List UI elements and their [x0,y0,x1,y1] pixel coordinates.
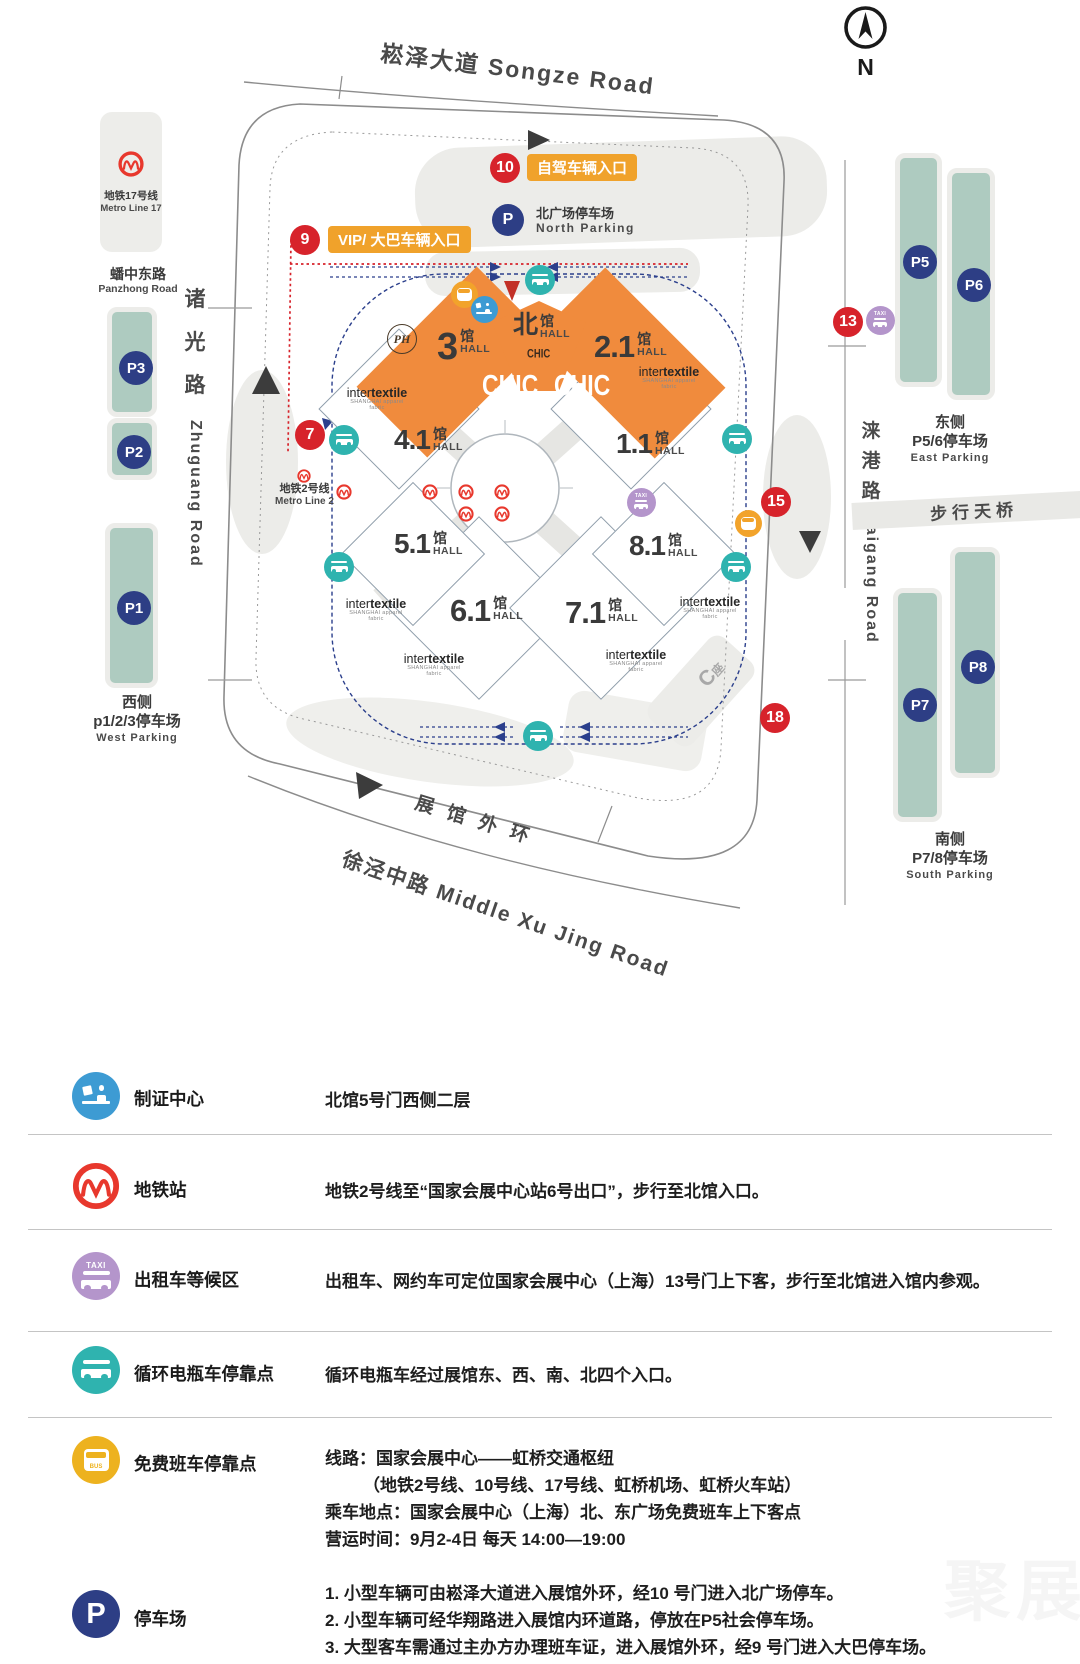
intertextile-logo: intertextile SHANGHAI apparel fabric [634,366,704,391]
badge-center-map-icon [471,296,498,323]
p2-badge: P2 [117,435,151,469]
self-drive-entrance-tag: 自驾车辆入口 [527,154,637,181]
divider [28,1229,1052,1230]
vip-bus-entrance-tag: VIP/ 大巴车辆入口 [328,226,471,253]
taxi-icon: TAXI [72,1252,120,1300]
intertextile-logo: intertextile SHANGHAI apparel fabric [601,649,671,674]
compass-n-label: N [843,56,888,79]
intertextile-logo: intertextile SHANGHAI apparel fabric [675,596,745,621]
panzhong-road-label: 蟠中东路 Panzhong Road [88,266,188,295]
map: 崧泽大道 Songze Road N 地铁17号线 Metro Line 17 … [0,0,1080,980]
intertextile-logo: intertextile SHANGHAI apparel fabric [341,598,411,623]
south-parking-label: 南侧 P7/8停车场 South Parking [880,831,1020,882]
legend-desc-metro: 地铁2号线至“国家会展中心站6号出口”，步行至北馆入口。 [325,1177,769,1202]
legend-label-free-bus: 免费班车停靠点 [134,1451,257,1476]
legend-desc-shuttle: 循环电瓶车经过展馆东、西、南、北四个入口。 [325,1361,682,1386]
intertextile-logo: intertextile SHANGHAI apparel fabric [342,387,412,412]
p8-badge: P8 [961,650,995,684]
metro17-en: Metro Line 17 [100,203,161,214]
p3-badge: P3 [119,351,153,385]
p7-badge: P7 [903,688,937,722]
metro-exit-icon [297,469,311,483]
taxi-stand-icon: TAXI [866,306,895,335]
shuttle-stop-icon [329,425,359,455]
hall-2-1-label: 2.1 馆HALL [594,331,667,362]
north-hall-label: 北 馆HALL [513,313,570,339]
gate-7-marker: 7 [295,420,325,450]
gate-10-marker: 10 [490,153,520,183]
hall-1-1-label: 1.1 馆HALL [616,430,685,458]
metro-exit-icon [458,506,474,522]
legend-label-parking: 停车场 [134,1606,187,1631]
p1-badge: P1 [117,591,151,625]
shuttle-stop-icon [324,552,354,582]
shuttle-icon [72,1346,120,1394]
divider [28,1134,1052,1135]
parking-icon: P [72,1590,120,1638]
bus-stop-icon [735,510,762,537]
legend-desc-free-bus: 线路：国家会展中心——虹桥交通枢纽 （地铁2号线、10号线、17号线、虹桥机场、… [325,1445,801,1553]
metro-exit-icon [458,484,474,500]
legend-label-taxi: 出租车等候区 [134,1267,239,1292]
p5-badge: P5 [903,245,937,279]
shuttle-stop-icon [525,265,555,295]
legend-desc-badge-center: 北馆5号门西侧二层 [325,1086,470,1111]
north-parking-p-badge: P [492,204,524,236]
divider [28,1417,1052,1418]
badge-icon [72,1072,120,1120]
shuttle-stop-icon [721,552,751,582]
shuttle-stop-icon [722,424,752,454]
divider [28,1331,1052,1332]
metro-line2-label: 地铁2号线 Metro Line 2 [262,483,347,508]
metro-exit-icon [494,506,510,522]
hall-5-1-label: 5.1 馆HALL [394,530,463,558]
venue-map-page: 崧泽大道 Songze Road N 地铁17号线 Metro Line 17 … [0,0,1080,1664]
gate-18-marker: 18 [760,703,790,733]
legend-label-badge-center: 制证中心 [134,1086,204,1111]
north-parking-label: 北广场停车场 North Parking [536,207,635,236]
west-parking-label: 西侧 p1/2/3停车场 West Parking [67,694,207,745]
taxi-stand-icon: TAXI [627,488,656,517]
hall-3-label: 3 馆HALL [437,328,490,366]
metro-line17-station: 地铁17号线 Metro Line 17 [100,112,162,252]
gate-9-marker: 9 [290,225,320,255]
chic-logo: CHIC [527,348,550,362]
metro-exit-icon [336,484,352,500]
legend-desc-parking: 1. 小型车辆可由崧泽大道进入展馆外环，经10 号门进入北广场停车。 2. 小型… [325,1580,936,1661]
metro17-cn: 地铁17号线 [104,188,158,203]
zhuguang-road-label: 诸光 路Zhuguang Road [181,289,209,568]
compass-north-icon: N [843,5,888,79]
intertextile-logo: intertextile SHANGHAI apparel fabric [399,653,469,678]
hall-6-1-label: 6.1 馆HALL [450,595,523,626]
gate-15-marker: 15 [761,487,791,517]
hall-4-1-label: 4.1 馆HALL [394,426,463,454]
p6-badge: P6 [957,268,991,302]
gate-13-marker: 13 [833,307,863,337]
footbridge-label: 步行天桥 [929,495,1018,525]
shuttle-stop-icon [523,721,553,751]
hall-7-1-label: 7.1 馆HALL [565,597,638,628]
watermark: 聚展 [944,1538,1080,1634]
east-parking-label: 东侧 P5/6停车场 East Parking [880,414,1020,465]
metro-exit-icon [422,484,438,500]
ph-logo: PH [387,324,417,354]
bus-icon: BUS [72,1436,120,1484]
legend-label-metro: 地铁站 [134,1177,187,1202]
chic-logo: CHIC [554,369,610,403]
chic-logo: CHIC [482,369,538,403]
metro-icon [72,1162,120,1210]
metro-icon [118,151,144,182]
legend-label-shuttle: 循环电瓶车停靠点 [134,1361,274,1386]
hall-8-1-label: 8.1 馆HALL [629,532,698,560]
metro-exit-icon [494,484,510,500]
legend-desc-taxi: 出租车、网约车可定位国家会展中心（上海）13号门上下客，步行至北馆进入馆内参观。 [325,1267,990,1292]
